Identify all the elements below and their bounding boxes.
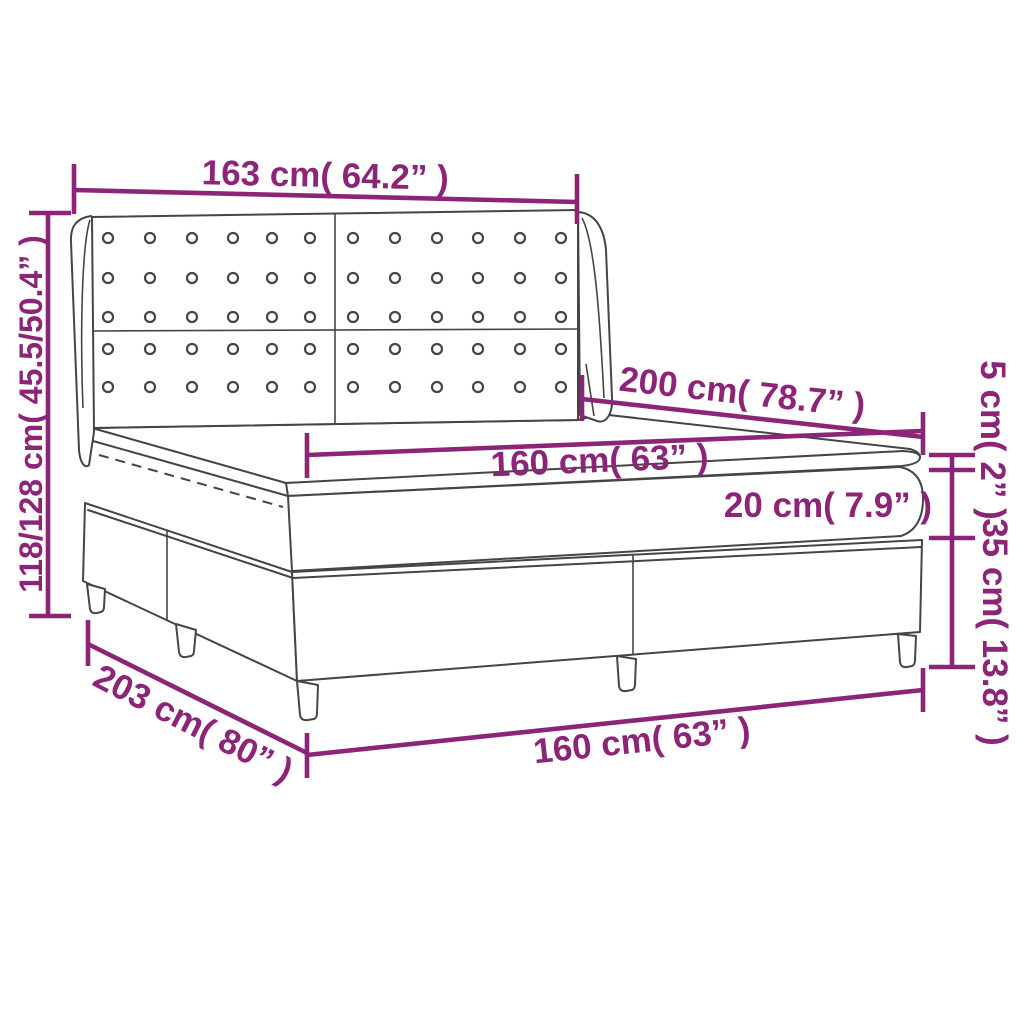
tufting-button xyxy=(267,344,277,354)
tufting-button xyxy=(305,344,315,354)
tufting-button xyxy=(103,344,113,354)
tufting-button xyxy=(145,273,155,283)
tufting-button xyxy=(473,273,483,283)
leg-front-right xyxy=(898,634,916,667)
tufting-button xyxy=(515,382,525,392)
tufting-button xyxy=(432,233,442,243)
tufting-button xyxy=(348,344,358,354)
tufting-button xyxy=(187,273,197,283)
tufting-button xyxy=(390,233,400,243)
tufting-button xyxy=(432,312,442,322)
tufting-button xyxy=(305,233,315,243)
tufting-button xyxy=(348,233,358,243)
label-headboard-width: 163 cm( 64.2” ) xyxy=(201,153,449,198)
tufting-button xyxy=(103,273,113,283)
tufting-button xyxy=(515,344,525,354)
leg-back-left xyxy=(87,584,105,613)
tufting-button xyxy=(473,233,483,243)
tufting-button xyxy=(305,382,315,392)
bed-dimension-diagram: 163 cm( 64.2” ) 118/128 cm( 45.5/50.4” )… xyxy=(0,0,1024,1024)
tufting-button xyxy=(228,344,238,354)
tufting-button xyxy=(515,273,525,283)
tufting-button xyxy=(145,382,155,392)
label-bed-height: 118/128 cm( 45.5/50.4” ) xyxy=(13,235,49,593)
tufting-button xyxy=(432,344,442,354)
tufting-button xyxy=(473,312,483,322)
tufting-button xyxy=(305,312,315,322)
dim-height-stack xyxy=(929,453,975,668)
tufting-button xyxy=(187,382,197,392)
tufting-button xyxy=(556,273,566,283)
tufting-button xyxy=(348,312,358,322)
tufting-button xyxy=(145,344,155,354)
tufting-button xyxy=(556,382,566,392)
tufting-button xyxy=(187,233,197,243)
tufting-button xyxy=(556,312,566,322)
tufting-button xyxy=(228,382,238,392)
label-base-depth: 203 cm( 80” ) xyxy=(87,657,299,791)
tufting-button xyxy=(305,273,315,283)
tufting-button xyxy=(228,233,238,243)
tufting-button xyxy=(103,233,113,243)
tufting-button xyxy=(187,344,197,354)
tufting-button xyxy=(187,312,197,322)
tufting-button xyxy=(556,233,566,243)
tufting-button xyxy=(228,312,238,322)
label-topper-height: 5 cm( 2” ) xyxy=(973,360,1012,520)
tufting-button xyxy=(145,312,155,322)
tufting-button xyxy=(267,233,277,243)
tufting-button xyxy=(556,344,566,354)
tufting-button xyxy=(267,382,277,392)
tufting-button xyxy=(348,382,358,392)
tufting-button xyxy=(515,233,525,243)
label-base-height: 35 cm( 13.8” ) xyxy=(975,518,1014,746)
tufting-button xyxy=(473,344,483,354)
tufting-button xyxy=(267,273,277,283)
tufting-button xyxy=(390,344,400,354)
leg-front-middle xyxy=(617,656,636,691)
leg-mid-left xyxy=(176,624,196,657)
headboard-left-wing xyxy=(71,216,94,466)
tufting-button xyxy=(145,233,155,243)
tufting-button xyxy=(432,273,442,283)
tufting-button xyxy=(103,312,113,322)
leg-front-left xyxy=(297,681,318,720)
tufting-button xyxy=(228,273,238,283)
tufting-button xyxy=(432,382,442,392)
tufting-button xyxy=(390,273,400,283)
label-mattress-height: 20 cm( 7.9” ) xyxy=(724,486,932,525)
tufting-button xyxy=(390,312,400,322)
tufting-button xyxy=(390,382,400,392)
tufting-button xyxy=(267,312,277,322)
tufting-button xyxy=(103,382,113,392)
tufting-button xyxy=(515,312,525,322)
tufting-button xyxy=(348,273,358,283)
tufting-button xyxy=(473,382,483,392)
